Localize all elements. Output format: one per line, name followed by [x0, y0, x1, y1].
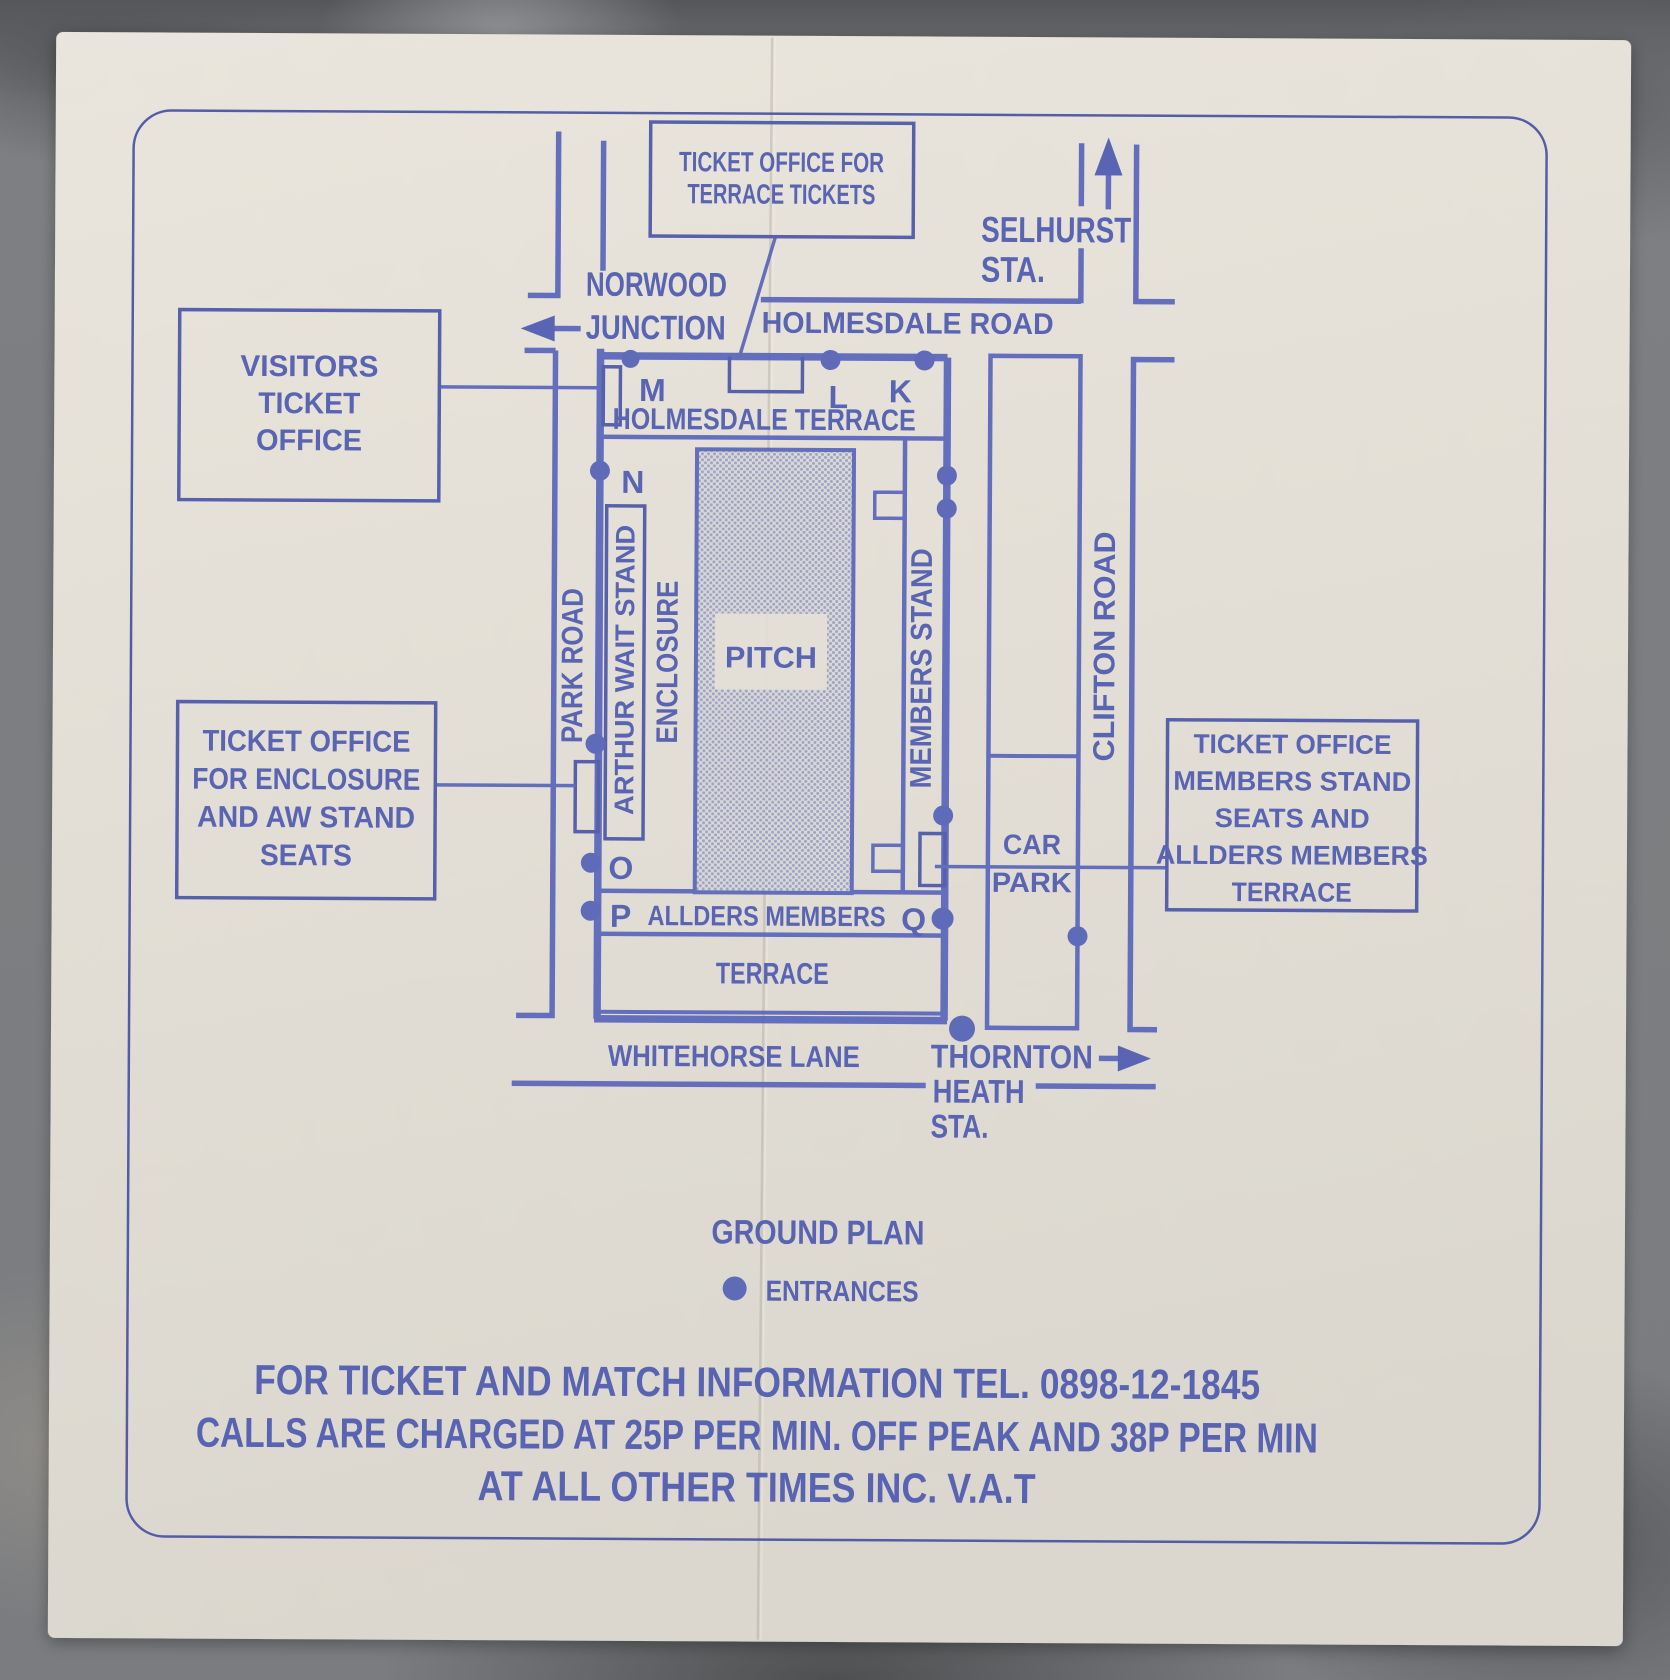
legend-entrances-label: ENTRANCES [766, 1276, 919, 1309]
stadium-west-wall [597, 349, 601, 1019]
gate-label-q: Q [901, 901, 926, 937]
car-park-label-1: CAR [1003, 829, 1061, 860]
whitehorse-lane-line [512, 1083, 1156, 1086]
legend-entrance-dot-icon [723, 1276, 747, 1300]
entrance-dot-p [581, 901, 601, 921]
members-office-label-1: TICKET OFFICE [1193, 729, 1391, 760]
thornton-station-label-3: STA. [930, 1108, 988, 1145]
terrace-label: TERRACE [716, 957, 829, 991]
visitors-office-connector [439, 387, 600, 388]
enclosure-office-label-3: AND AW STAND [197, 801, 415, 835]
members-office-label-2: MEMBERS STAND [1173, 766, 1411, 797]
terrace-ticket-office-label-2: TERRACE TICKETS [687, 178, 875, 210]
entrance-dot-n [590, 461, 610, 481]
whitehorse-lane-label: WHITEHORSE LANE [608, 1040, 860, 1074]
car-park-label-2: PARK [992, 867, 1072, 898]
ground-plan-scan: TICKET OFFICE FOR TERRACE TICKETS SELHUR… [0, 0, 1670, 1680]
gate-label-n: N [621, 464, 644, 500]
entrance-dot-l [820, 350, 840, 370]
allders-members-label: ALLDERS MEMBERS [648, 900, 886, 932]
enclosure-office-connector [435, 785, 575, 786]
gate-label-o: O [608, 850, 633, 886]
entrance-dot-car-park [1067, 926, 1087, 946]
stadium-south-wall [594, 1019, 947, 1021]
members-stand-label: MEMBERS STAND [905, 548, 939, 788]
gate-label-p: P [610, 898, 632, 934]
paper-sheet: TICKET OFFICE FOR TERRACE TICKETS SELHUR… [48, 32, 1631, 1646]
gate-label-k: K [889, 373, 912, 409]
arthur-wait-stand-label: ARTHUR WAIT STAND [609, 525, 641, 815]
enclosure-office-label-1: TICKET OFFICE [202, 725, 410, 759]
entrance-dot-o [581, 853, 601, 873]
entrance-dot-east-1 [937, 466, 957, 486]
footer-info-line-3: AT ALL OTHER TIMES INC. V.A.T [477, 1462, 1036, 1512]
footer-info-line-1: FOR TICKET AND MATCH INFORMATION TEL. 08… [254, 1356, 1260, 1408]
allders-row-bottom-line [598, 934, 945, 936]
entrance-dot-k [914, 350, 934, 370]
selhurst-station-label-2: STA. [981, 249, 1045, 290]
visitors-office-label-3: OFFICE [256, 424, 362, 458]
pitch-label: PITCH [725, 641, 817, 674]
terrace-ticket-office-label-1: TICKET OFFICE FOR [679, 146, 884, 178]
entrance-dot-m [621, 350, 639, 368]
members-office-label-5: TERRACE [1232, 877, 1352, 908]
enclosure-office-label-2: FOR ENCLOSURE [192, 763, 420, 797]
entrance-dot-east-2 [937, 499, 957, 519]
enclosure-office-label-4: SEATS [260, 839, 352, 872]
terrace-inner-bottom-line [597, 1012, 944, 1014]
members-office-label-3: SEATS AND [1215, 803, 1370, 834]
entrance-dot-q [932, 908, 954, 930]
norwood-junction-label-2: JUNCTION [586, 309, 726, 348]
holmesdale-road-label: HOLMESDALE ROAD [762, 307, 1054, 342]
visitors-office-label-1: VISITORS [240, 350, 378, 384]
holmesdale-road-line [761, 300, 1081, 302]
thornton-station-label-2: HEATH [933, 1073, 1025, 1110]
clifton-road-label: CLIFTON ROAD [1088, 531, 1122, 761]
members-office-label-4: ALLDERS MEMBERS [1156, 840, 1428, 871]
enclosure-label: ENCLOSURE [651, 581, 685, 744]
selhurst-station-label-1: SELHURST [981, 209, 1131, 251]
thornton-station-label-1: THORNTON [931, 1038, 1093, 1076]
visitors-office-label-2: TICKET [258, 387, 360, 421]
footer-info-line-2: CALLS ARE CHARGED AT 25P PER MIN. OFF PE… [196, 1409, 1318, 1462]
stadium-north-wall [598, 356, 948, 358]
norwood-road-east-line [603, 141, 604, 271]
gate-label-l: L [828, 379, 848, 415]
legend-title: GROUND PLAN [711, 1213, 924, 1252]
entrance-dot-east-3 [933, 806, 953, 826]
norwood-junction-label-1: NORWOOD [586, 266, 727, 305]
gate-label-m: M [639, 372, 666, 408]
park-road-label: PARK ROAD [556, 588, 590, 743]
